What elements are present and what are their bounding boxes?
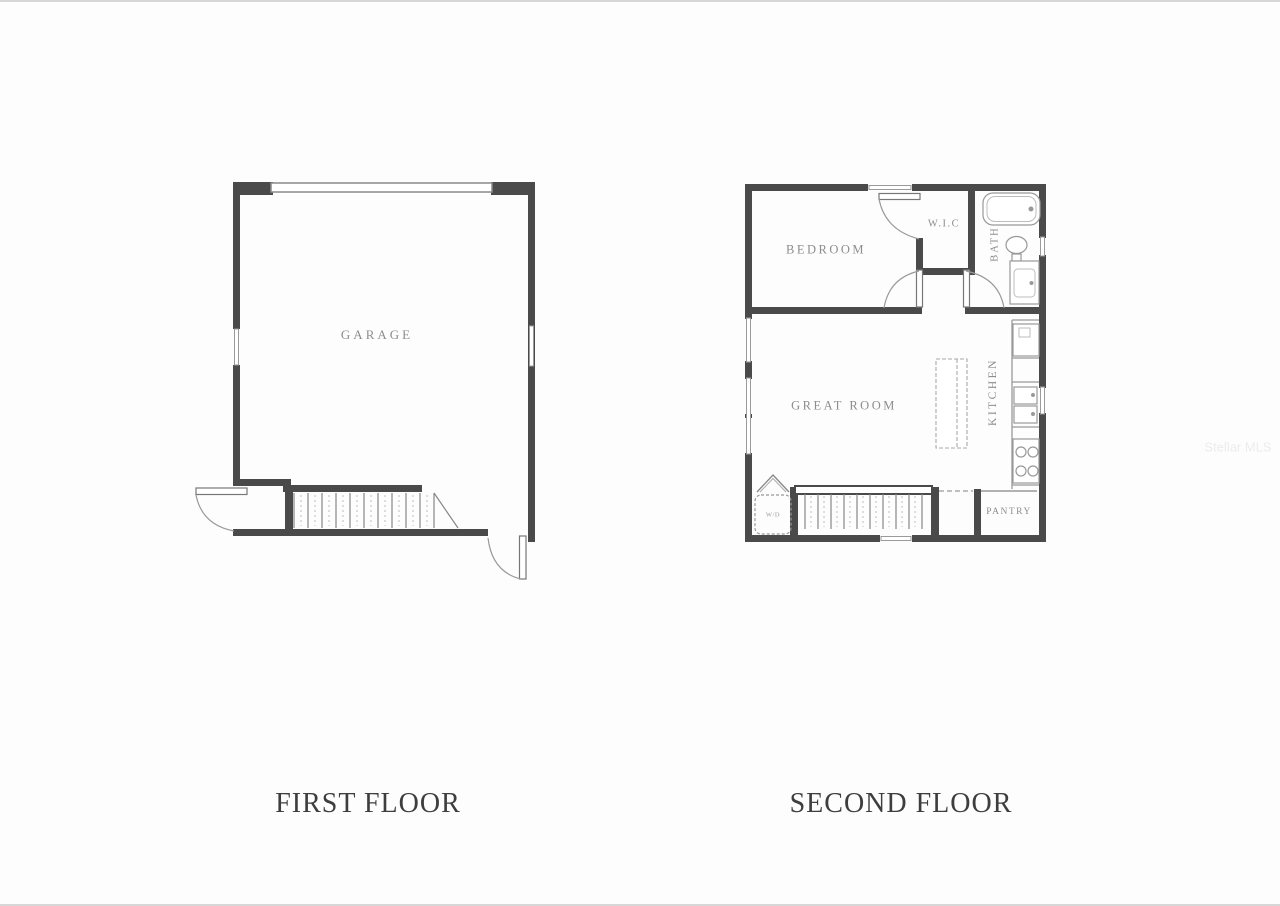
wic-room-label: W.I.C [928,219,960,230]
second-floor-title: SECOND FLOOR [790,788,1013,820]
window-icon [881,537,911,541]
second-floor-stairs [795,486,973,529]
window-icon [747,318,751,362]
floor-plan-drawing [0,2,1280,906]
stove-icon [1013,439,1039,483]
floor-plan-page: GARAGE BEDROOM W.I.C BATH GREAT ROOM KIT… [0,0,1280,906]
kitchen-island-icon [936,359,967,448]
window-icon [869,186,911,190]
window-icon [235,329,239,365]
bedroom-room-label: BEDROOM [786,243,866,258]
window-icon [1041,387,1045,414]
garage-room-label: GARAGE [341,327,413,343]
washer-dryer-label: W/D [766,512,780,519]
bath-vanity-sink-icon [1010,261,1039,304]
rear-door-icon [488,536,526,579]
kitchen-sink-icon [1014,387,1037,423]
first-floor-stairs [294,493,458,528]
washer-dryer-closet-icon [755,475,791,534]
kitchen-room-label: KITCHEN [987,358,999,426]
first-floor-plan [196,182,535,579]
garage-door-icon [271,183,492,192]
entry-door-icon [196,488,247,531]
bathtub-icon [983,193,1040,225]
first-floor-title: FIRST FLOOR [275,788,461,820]
wic-door-icon [879,194,920,240]
second-floor-plan [745,184,1046,542]
first-floor-walls [233,182,535,542]
window-icon [747,378,751,454]
pantry-room-label: PANTRY [986,507,1032,517]
great-room-label: GREAT ROOM [791,399,897,414]
fridge-icon [1013,324,1039,356]
toilet-icon [1006,237,1027,262]
bath-room-label: BATH [990,226,1001,261]
window-icon [1041,237,1045,256]
window-icon [530,326,534,366]
stellar-mls-watermark: Stellar MLS [1204,440,1271,455]
bedroom-door-icon [884,270,923,308]
bath-door-icon [964,270,1005,308]
